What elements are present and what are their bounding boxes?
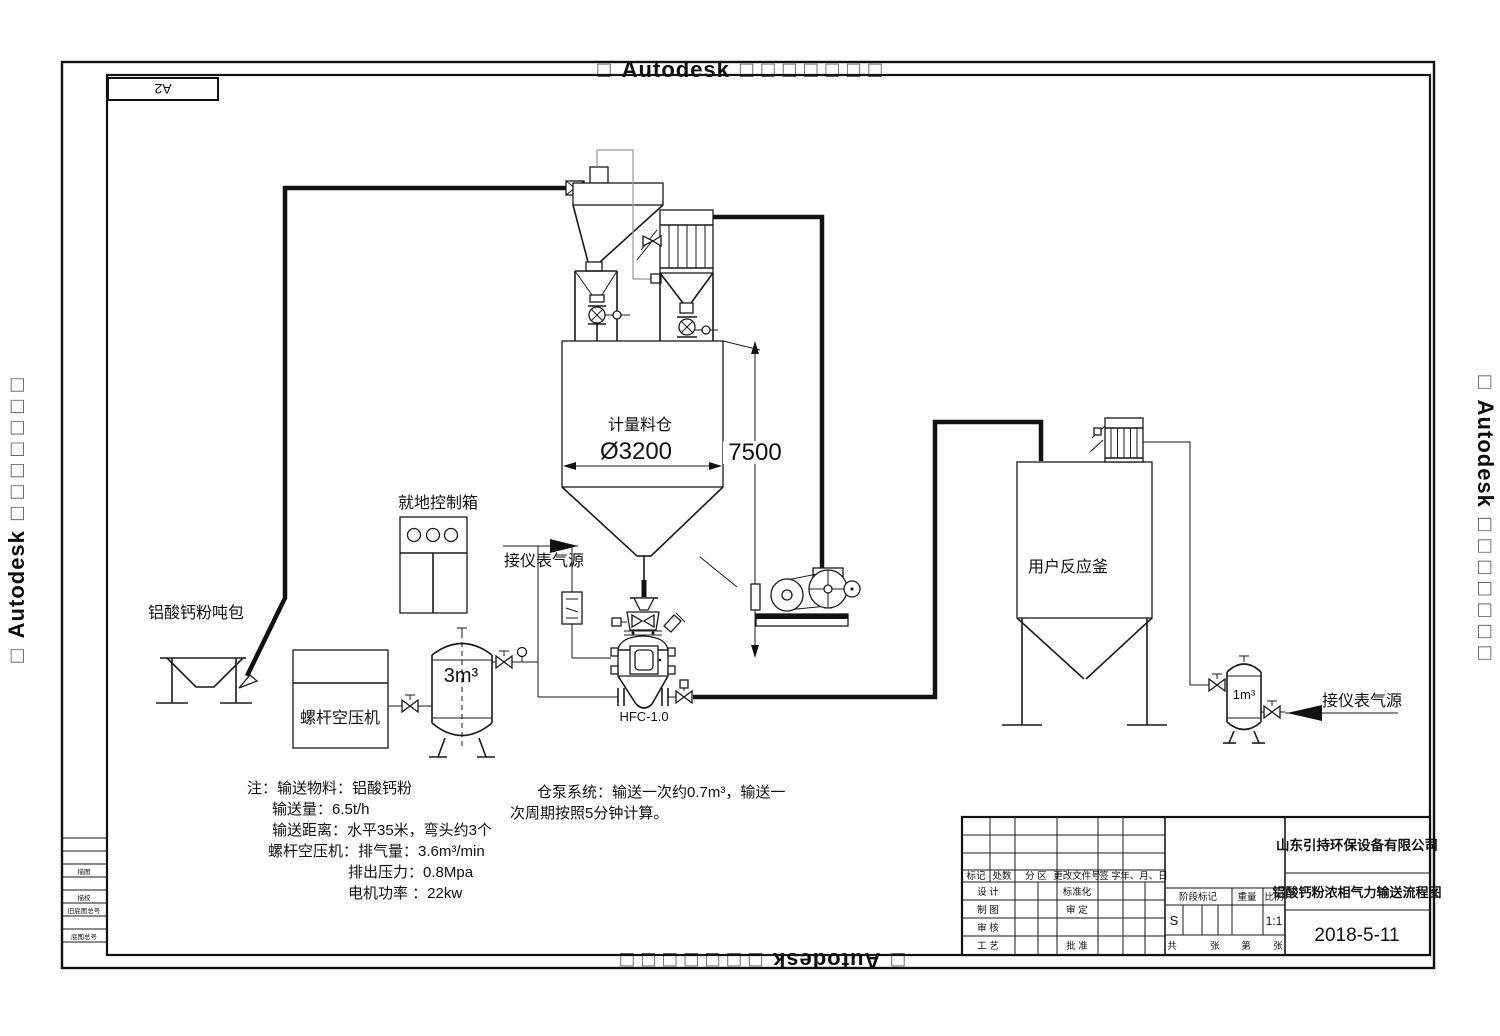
indicator-lamp-icon	[408, 529, 421, 542]
flow-arrow-icon	[239, 675, 257, 688]
tb-row-label: 工 艺	[977, 941, 999, 952]
tb-header-cell: 年、月、日	[1120, 870, 1168, 882]
tb-row-label: 审 核	[977, 922, 999, 934]
pulse-valve-icon	[637, 230, 661, 260]
margin-row-label: 底图总号	[71, 932, 98, 941]
ton-bag-label: 铝酸钙粉吨包	[148, 604, 244, 622]
svg-text:□Autodesk□ □ □ □ □ □ □: □Autodesk□ □ □ □ □ □ □	[4, 377, 29, 662]
tb-header-cell: 签 字	[1099, 870, 1121, 882]
silo-diameter-value: Ø3200	[600, 438, 672, 465]
cad-drawing-canvas: □Autodesk□ □ □ □ □ □ □ □Autodesk□ □ □ □ …	[0, 0, 1500, 1036]
instrument-air-right: 接仪表气源	[1285, 692, 1402, 721]
tb-row-label: 制 图	[977, 904, 999, 916]
tb-header-cell: 更改文件号	[1053, 870, 1101, 882]
pulse-valve-icon	[1090, 426, 1105, 452]
watermark-top: □Autodesk□ □ □ □ □ □ □	[597, 57, 882, 82]
indicator-lamp-icon	[427, 529, 440, 542]
note-line: 排出压力：0.8Mpa	[348, 864, 474, 881]
air-tank-1m3: 1m³	[1209, 656, 1285, 743]
instrument-air-left: 接仪表气源	[503, 539, 618, 697]
cyclone-separator	[566, 167, 663, 341]
filter-vent-pipe	[713, 217, 822, 568]
bin-pump: HFC-1.0	[611, 556, 692, 724]
note-line: 输送量：6.5t/h	[272, 801, 370, 818]
autodesk-logo-text: Autodesk	[622, 57, 730, 82]
tb-sheet-cell: 张	[1210, 941, 1220, 952]
pump-note-line: 仓泵系统：输送一次约0.7m³，输送一	[537, 784, 785, 801]
tb-sheet-cell: 第	[1241, 940, 1251, 952]
note-line: 输送距离：水平35米，弯头约3个	[272, 822, 492, 839]
tb-company-name: 山东引持环保设备有限公司	[1276, 837, 1438, 853]
tank-volume-label: 1m³	[1233, 687, 1256, 702]
discharge-valve-icon	[676, 691, 684, 703]
air-arrow-icon	[1287, 705, 1322, 721]
tb-stage-mark: S	[1170, 913, 1179, 928]
manhole-icon	[635, 650, 653, 670]
margin-row-label: 旧底图总号	[68, 906, 101, 915]
valve-icon	[1209, 679, 1217, 691]
sheet-size-label: A2	[154, 81, 171, 97]
watermark-bottom: □Autodesk□ □ □ □ □ □ □	[619, 948, 904, 973]
silo-height-value: 7500	[728, 439, 781, 466]
note-line: 电机功率 ：22kw	[348, 885, 462, 902]
tb-sheet-cell: 共	[1167, 941, 1177, 952]
pressure-gauge-icon	[518, 648, 527, 657]
kettle-label: 用户反应釜	[1028, 557, 1108, 576]
title-block: 标记 处数 分 区 更改文件号 签 字 年、月、日 设 计 制 图 审 核 工 …	[962, 817, 1442, 955]
valve-icon	[402, 700, 410, 712]
tb-header-cell: 分 区	[1025, 871, 1047, 882]
note-line: 注：输送物料：铝酸钙粉	[247, 780, 412, 797]
svg-text:□Autodesk□ □ □ □ □ □ □: □Autodesk□ □ □ □ □ □ □	[619, 948, 904, 973]
air-regulator-icon	[562, 592, 582, 624]
watermark-left: □Autodesk□ □ □ □ □ □ □	[4, 377, 29, 662]
screw-compressor: 螺杆空压机	[293, 650, 432, 748]
local-control-box: 就地控制箱	[398, 494, 478, 613]
tb-stage-header: 阶段标记	[1179, 891, 1218, 903]
tb-date: 2018-5-11	[1314, 925, 1399, 946]
gauge-icon	[702, 326, 710, 334]
air-arrow-icon	[550, 539, 578, 553]
ton-bag-hopper: 铝酸钙粉吨包	[148, 604, 252, 703]
tb-mid-label: 审 定	[1066, 904, 1088, 916]
indicator-lamp-icon	[445, 529, 458, 542]
tb-mid-label: 批 准	[1066, 940, 1088, 952]
margin-row-label: 描校	[78, 893, 92, 902]
bin-pump-model-label: HFC-1.0	[619, 709, 668, 724]
air-source-label: 接仪表气源	[1322, 692, 1402, 710]
tofu-box-icon: □	[597, 57, 611, 82]
tb-sheet-cell: 张	[1273, 941, 1283, 952]
pump-note-line: 次周期按照5分钟计算。	[510, 804, 668, 822]
tb-mid-label: 标准化	[1063, 886, 1092, 898]
silo-label: 计量料仓	[608, 416, 672, 434]
pump-note-block: 仓泵系统：输送一次约0.7m³，输送一 次周期按照5分钟计算。	[510, 784, 785, 822]
control-box-label: 就地控制箱	[398, 494, 478, 512]
gauge-icon	[613, 311, 621, 319]
svg-text:□Autodesk□ □ □ □ □ □ □: □Autodesk□ □ □ □ □ □ □	[597, 57, 882, 82]
side-nozzle-icon	[664, 615, 681, 632]
reaction-kettle: 用户反应釜	[1002, 462, 1167, 725]
tb-drawing-title: 铝酸钙粉浓相气力输送流程图	[1272, 885, 1441, 900]
compressor-label: 螺杆空压机	[300, 709, 380, 727]
svg-text:□Autodesk□ □ □ □ □ □ □: □Autodesk□ □ □ □ □ □ □	[1473, 375, 1498, 660]
blower-unit	[751, 568, 860, 626]
tb-scale-value: 1:1	[1266, 914, 1283, 928]
filter-vent-line	[1143, 442, 1209, 685]
tofu-box-icons: □ □ □ □ □ □ □	[740, 57, 883, 82]
note-line: 螺杆空压机：排气量：3.6m³/min	[268, 843, 485, 860]
valve-icon	[496, 656, 504, 668]
tank-volume-label: 3m³	[444, 665, 479, 687]
watermark-right: □Autodesk□ □ □ □ □ □ □	[1473, 375, 1498, 660]
margin-row-label: 描图	[78, 867, 91, 876]
bag-filter	[637, 210, 718, 341]
notes-block: 注：输送物料：铝酸钙粉 输送量：6.5t/h 输送距离：水平35米，弯头约3个 …	[247, 780, 492, 902]
tb-row-label: 设 计	[977, 886, 999, 898]
tb-header-cell: 处数	[992, 870, 1012, 882]
air-tank-3m3: 3m³	[429, 628, 538, 757]
margin-table: 描图 描校 旧底图总号 底图总号	[62, 838, 107, 942]
tb-stage-header: 重量	[1237, 891, 1257, 903]
tb-header-cell: 标记	[966, 870, 986, 882]
